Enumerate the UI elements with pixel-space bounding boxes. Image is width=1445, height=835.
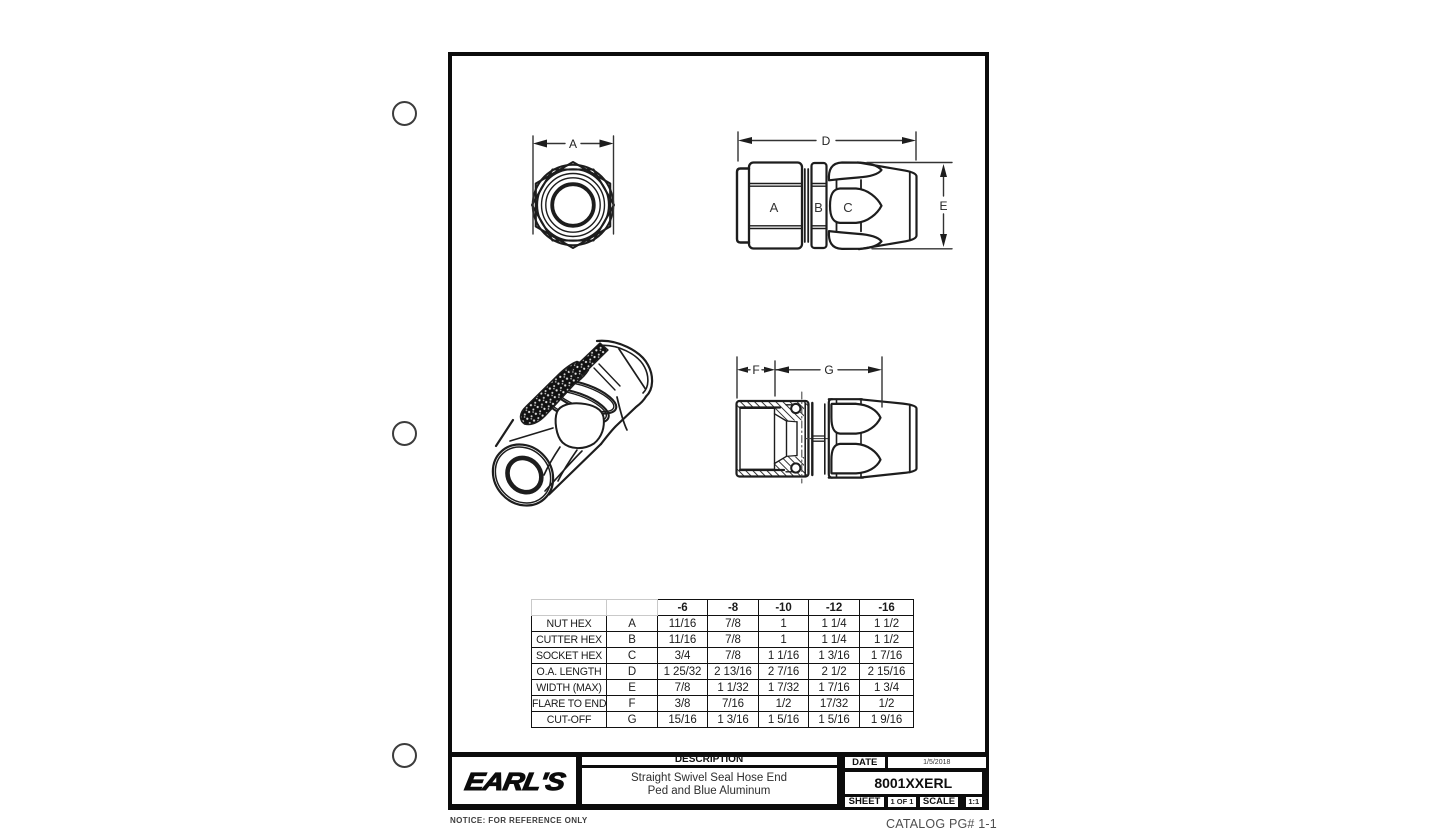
- svg-text:A: A: [569, 137, 577, 151]
- svg-text:D: D: [822, 134, 831, 148]
- svg-text:G: G: [824, 363, 833, 377]
- svg-text:C: C: [843, 200, 852, 215]
- svg-text:A: A: [770, 200, 779, 215]
- svg-text:F: F: [752, 363, 759, 377]
- svg-text:B: B: [814, 200, 823, 215]
- svg-text:E: E: [939, 199, 947, 213]
